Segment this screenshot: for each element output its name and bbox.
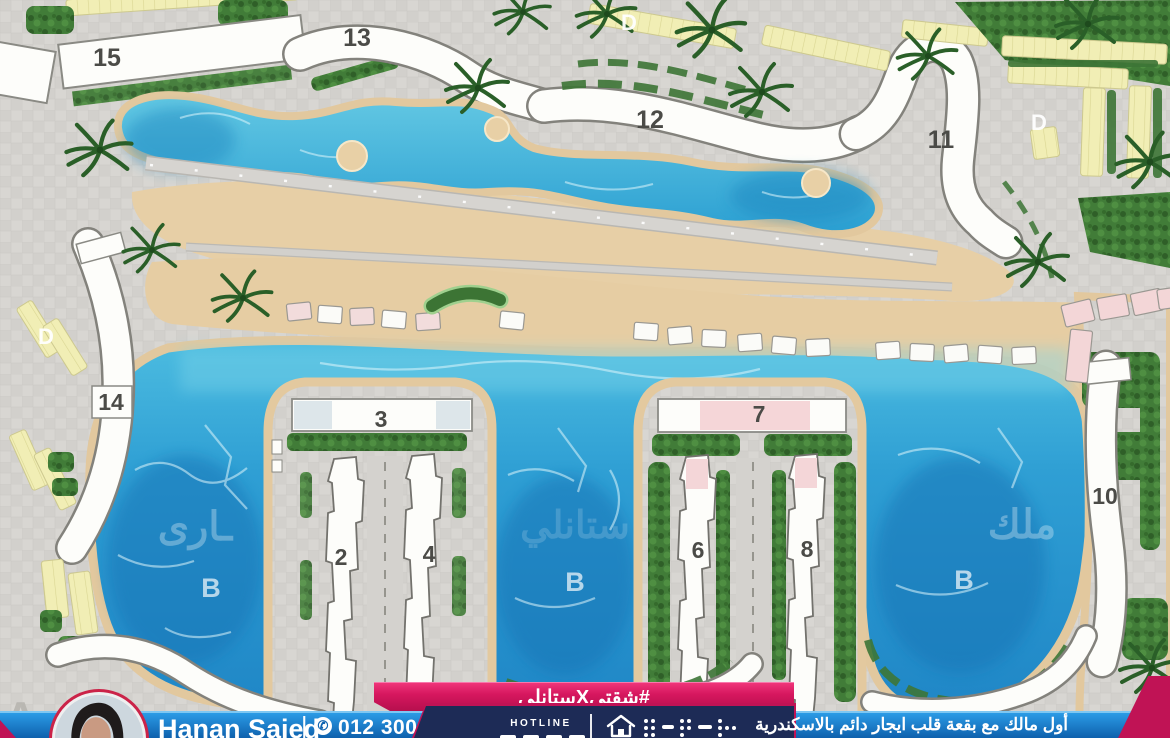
label-pool-b-center: B [565, 567, 585, 597]
avatar-photo [55, 695, 137, 738]
house-icon [604, 713, 774, 738]
tagline: أول مالك مع بقعة قلب ايجار دائم بالاسكند… [756, 715, 1068, 735]
label-pool-b-right: B [954, 565, 974, 595]
label-zone-d-right: D [1031, 110, 1047, 135]
site-map: ـارى ستانلي ملك 15 13 D 12 11 D D 14 3 2… [0, 0, 1170, 738]
pink-cap-6 [686, 459, 708, 489]
divider: | [301, 712, 308, 738]
label-building-4: 4 [423, 541, 436, 567]
label-zone-d-top: D [621, 10, 637, 35]
label-building-2: 2 [335, 544, 348, 570]
building-corner-topleft [0, 42, 56, 104]
label-building-13: 13 [343, 24, 371, 52]
building-10-band [1101, 366, 1111, 662]
hotline-label: HOTLINE [476, 718, 606, 729]
svg-text:ـارى: ـارى [158, 505, 234, 551]
label-building-11: 11 [928, 126, 955, 154]
building-10-head [1085, 358, 1131, 384]
label-building-8: 8 [801, 536, 814, 562]
label-building-15: 15 [93, 44, 121, 72]
agent-name: Hanan Saied [158, 714, 320, 738]
label-building-12: 12 [636, 106, 664, 134]
trees-topleft [26, 6, 74, 34]
label-building-14: 14 [98, 389, 124, 415]
label-zone-d-left: D [38, 324, 54, 349]
svg-text:ملك: ملك [988, 503, 1056, 547]
label-building-10: 10 [1092, 483, 1118, 509]
label-pool-b-left: B [201, 573, 221, 603]
hotline-panel: HOTLINE [412, 703, 796, 738]
panel-divider [590, 714, 592, 738]
flyer-page: ـارى ستانلي ملك 15 13 D 12 11 D D 14 3 2… [0, 0, 1170, 738]
label-building-7: 7 [753, 401, 766, 427]
svg-text:ستانلي: ستانلي [520, 505, 630, 548]
label-building-3: 3 [375, 406, 388, 432]
label-building-6: 6 [692, 537, 705, 563]
pink-cap-8 [795, 458, 817, 488]
phone-icon: ✆ [314, 717, 332, 735]
agent-avatar [52, 692, 146, 738]
